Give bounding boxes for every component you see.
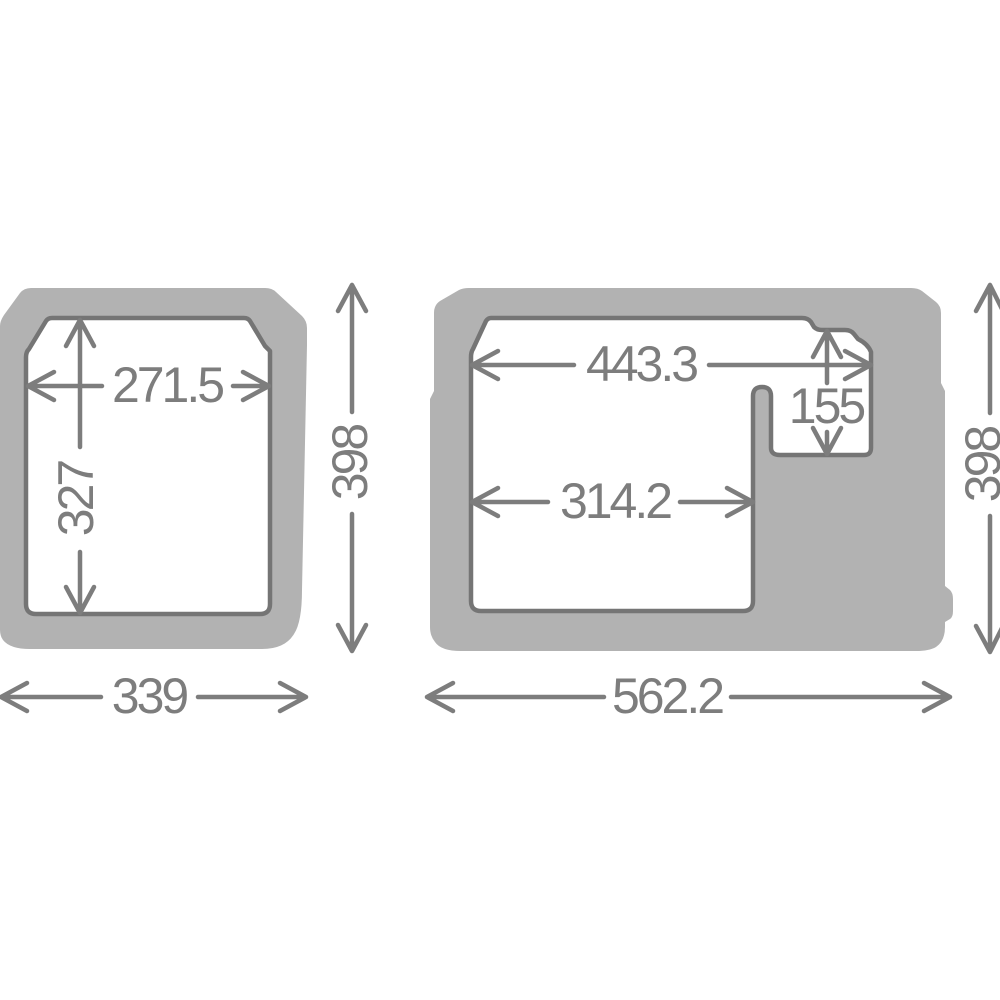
dim-front-outer-width-label: 339 [112,668,188,724]
dim-side-outer-height-label: 398 [955,427,1000,503]
dim-front-outer-width: 339 [1,668,306,724]
dim-side-inner-top-width-label: 443.3 [586,336,697,392]
diagram-svg: 271.5 327 398 339 [0,0,1000,1000]
dim-side-outer-height: 398 [955,285,1000,652]
dim-front-inner-depth-label: 327 [48,461,104,537]
dim-side-compartment-depth-label: 155 [789,378,865,434]
cooler-dimension-diagram: 271.5 327 398 339 [0,0,1000,1000]
dim-front-outer-height-label: 398 [322,425,378,501]
dim-front-outer-height: 398 [322,285,378,651]
dim-side-inner-bottom-width-label: 314.2 [560,473,671,529]
dim-side-outer-length-label: 562.2 [612,668,723,724]
front-view: 271.5 327 398 339 [0,285,378,724]
side-view: 443.3 155 314.2 398 562.2 [427,285,1000,724]
dim-side-outer-length: 562.2 [427,668,950,724]
dim-front-inner-width-label: 271.5 [112,357,223,413]
